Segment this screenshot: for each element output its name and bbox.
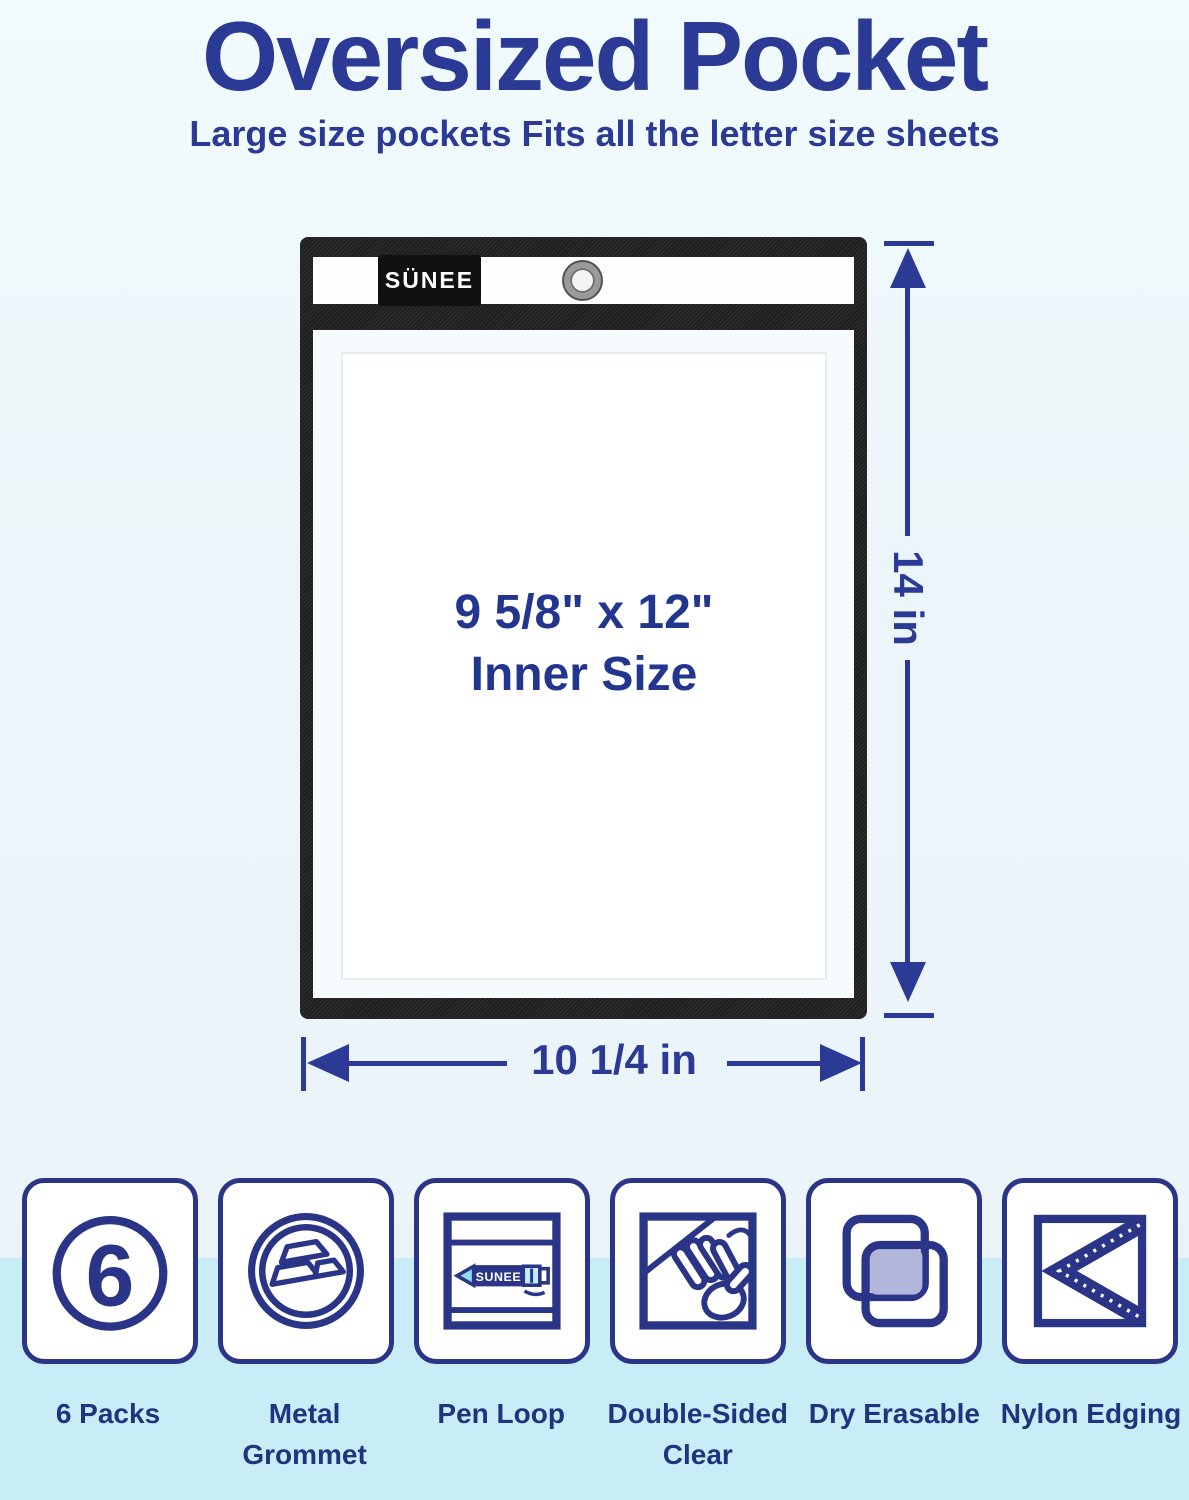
- pen-loop-icon: SUNEE: [431, 1195, 573, 1347]
- product-infographic: Oversized Pocket Large size pockets Fits…: [0, 0, 1189, 1500]
- height-dim-line-upper: [905, 288, 910, 536]
- feature-tile-metal-grommet: [218, 1178, 394, 1364]
- pocket-header-band: SÜNEE: [313, 257, 854, 304]
- feature-tile-dry-erasable: [806, 1178, 982, 1364]
- inner-size-text: 9 5/8" x 12" Inner Size: [343, 582, 825, 707]
- feature-tile-nylon-edging: [1002, 1178, 1178, 1364]
- feature-label-metal-grommet: Metal Grommet: [207, 1394, 403, 1475]
- height-dim-down-arrow-icon: [890, 962, 926, 1002]
- feature-label-double-sided-clear: Double-Sided Clear: [600, 1394, 796, 1475]
- feature-label-6-packs: 6 Packs: [10, 1394, 206, 1475]
- six-count-badge-icon: 6: [39, 1195, 181, 1347]
- feature-label-dry-erasable: Dry Erasable: [796, 1394, 992, 1475]
- height-dim-top-cap: [884, 241, 934, 246]
- pen-brand-text: SUNEE: [476, 1270, 522, 1284]
- pocket-body: 9 5/8" x 12" Inner Size: [313, 330, 854, 998]
- width-dim-right-cap: [860, 1037, 865, 1091]
- width-dim-line-right: [727, 1061, 820, 1066]
- feature-label-pen-loop: Pen Loop: [403, 1394, 599, 1475]
- feature-labels: 6 Packs Metal Grommet Pen Loop Double-Si…: [10, 1394, 1189, 1475]
- height-dim-bottom-cap: [884, 1013, 934, 1018]
- brand-label: SÜNEE: [378, 255, 481, 306]
- height-dim-label: 14 in: [846, 536, 970, 660]
- width-dim-line-left: [349, 1061, 507, 1066]
- width-dim-right-arrow-icon: [820, 1044, 862, 1082]
- double-sided-clear-icon: [627, 1195, 769, 1347]
- feature-tiles: 6 SUNEE: [22, 1178, 1178, 1364]
- width-dim-left-arrow-icon: [307, 1044, 349, 1082]
- height-dim-up-arrow-icon: [890, 248, 926, 288]
- feature-tile-double-sided-clear: [610, 1178, 786, 1364]
- width-dim-left-cap: [301, 1037, 306, 1091]
- page-title: Oversized Pocket: [0, 0, 1189, 113]
- inner-size-caption: Inner Size: [343, 644, 825, 706]
- inner-sheet: 9 5/8" x 12" Inner Size: [341, 352, 827, 980]
- feature-tile-6-packs: 6: [22, 1178, 198, 1364]
- grommet: [564, 262, 601, 299]
- page-subtitle: Large size pockets Fits all the letter s…: [0, 113, 1189, 155]
- dry-erasable-icon: [823, 1195, 965, 1347]
- height-dim-line-lower: [905, 660, 910, 962]
- nylon-edging-icon: [1019, 1195, 1161, 1347]
- feature-tile-pen-loop: SUNEE: [414, 1178, 590, 1364]
- pocket-illustration: SÜNEE 9 5/8" x 12" Inner Size: [300, 237, 867, 1019]
- inner-size-value: 9 5/8" x 12": [343, 582, 825, 644]
- metal-grommet-icon: [235, 1195, 377, 1347]
- feature-label-nylon-edging: Nylon Edging: [993, 1394, 1189, 1475]
- pack-count: 6: [86, 1226, 135, 1324]
- width-dim-label: 10 1/4 in: [499, 1036, 729, 1084]
